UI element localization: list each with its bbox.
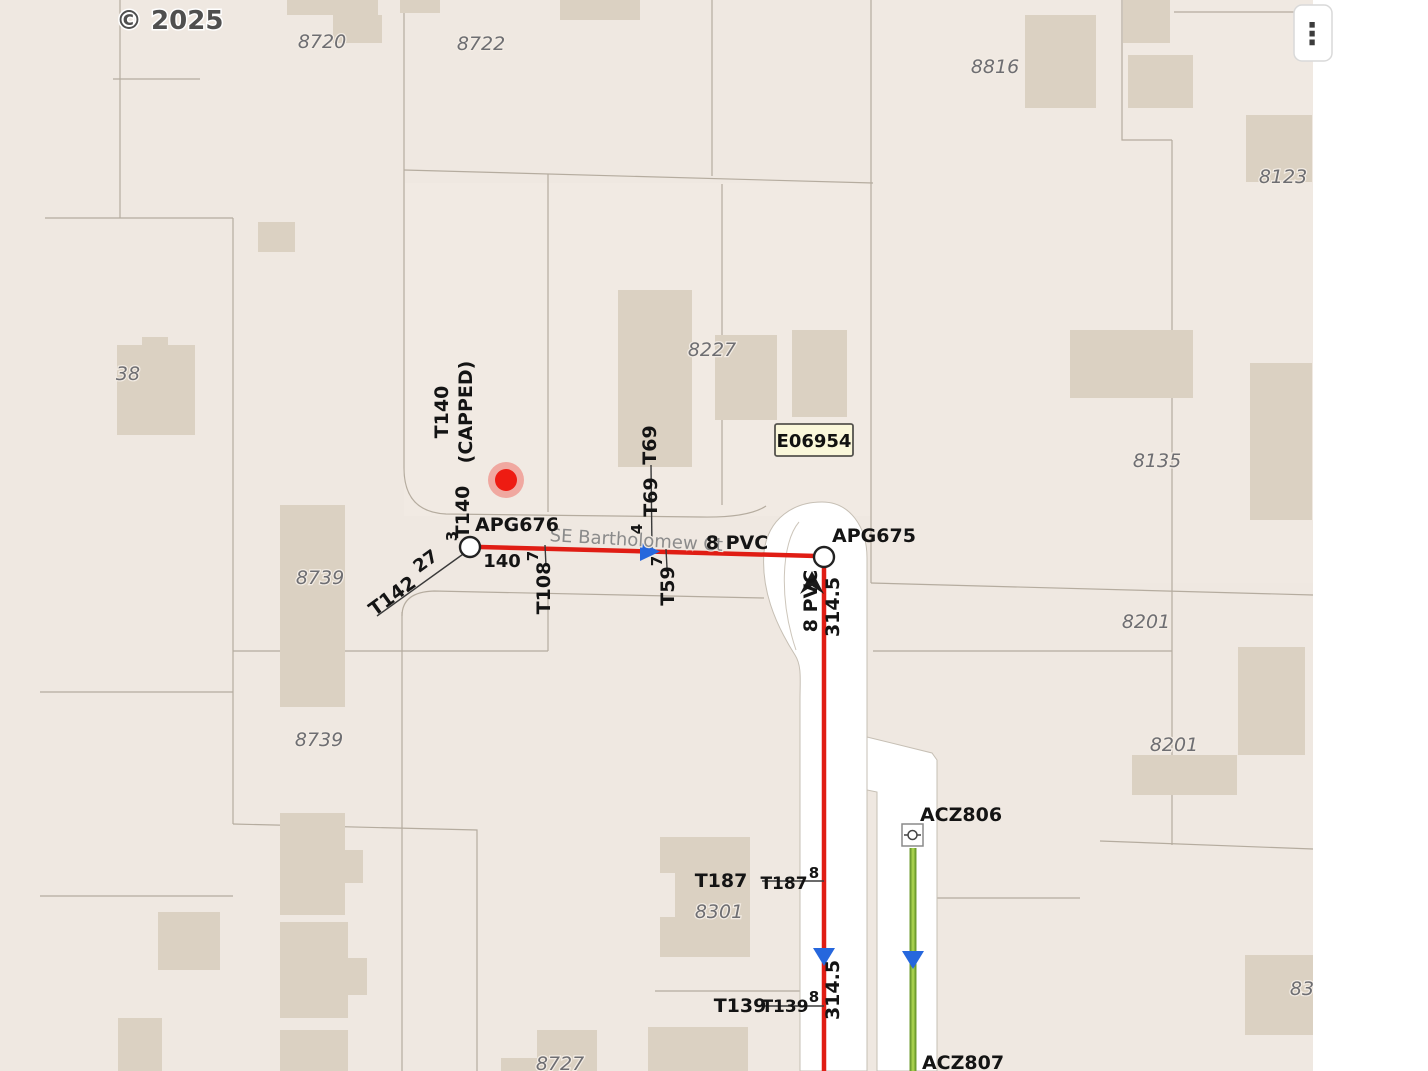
building <box>501 1058 537 1071</box>
tap-label-t108: T108 <box>533 562 555 615</box>
tap-label-t187: T187 <box>695 870 748 892</box>
dim-label-8: 8 <box>809 988 819 1006</box>
node-label-acz807: ACZ807 <box>922 1052 1004 1071</box>
building <box>158 912 220 970</box>
map-margin <box>1313 0 1428 1071</box>
building <box>1132 755 1237 795</box>
tap-label-t187: T187 <box>760 874 807 894</box>
selection-dot <box>495 469 517 491</box>
tap-label-capped: (CAPPED) <box>455 361 477 464</box>
building <box>348 958 367 995</box>
building <box>648 1027 748 1071</box>
tap-label-t139: T139 <box>761 997 808 1017</box>
side-road <box>867 737 937 1071</box>
building <box>345 850 363 883</box>
building <box>1070 330 1193 398</box>
copyright-label: © 2025 <box>116 6 223 36</box>
gis-map-viewport[interactable]: 8720 8722 8816 8123 38 8227 8135 8739 87… <box>0 0 1428 1071</box>
dim-label-3: 3 <box>443 531 461 541</box>
length-label-314: 314.5 <box>822 577 844 637</box>
meter-dial <box>908 831 917 840</box>
building <box>117 345 195 435</box>
building <box>1250 363 1312 520</box>
tap-label-t140-capped: T140 <box>431 386 453 439</box>
building <box>1123 0 1170 43</box>
parcel-label: 8720 <box>298 31 346 53</box>
building <box>287 0 378 15</box>
parcel-label: 8739 <box>295 729 343 751</box>
dim-label-4: 4 <box>628 524 646 534</box>
dim-label-8: 8 <box>809 864 819 882</box>
meter-icon[interactable] <box>902 824 923 846</box>
parcel-label: 8727 <box>536 1053 584 1071</box>
node-apg675[interactable] <box>814 547 834 567</box>
building <box>280 1030 348 1071</box>
building <box>400 0 440 13</box>
pipe-label-8pvc: 8 PVC <box>706 532 768 554</box>
callout-label: E06954 <box>777 431 852 452</box>
building <box>792 330 847 417</box>
kebab-menu-icon: ⋮ <box>1297 17 1327 52</box>
parcel-label: 8201 <box>1150 734 1198 756</box>
parcel-label: 8816 <box>971 56 1019 78</box>
length-label-314: 314.5 <box>822 960 844 1020</box>
building <box>1128 55 1193 108</box>
node-apg676[interactable] <box>460 537 480 557</box>
building <box>280 505 345 707</box>
map-canvas[interactable]: 8720 8722 8816 8123 38 8227 8135 8739 87… <box>0 0 1428 1071</box>
tap-label-t69: T69 <box>640 477 662 516</box>
tap-label-t69: T69 <box>639 425 661 464</box>
tap-label-t139: T139 <box>714 995 767 1017</box>
tap-label-t140: T140 <box>452 486 474 539</box>
parcel-label: 8123 <box>1259 166 1307 188</box>
building <box>258 222 295 252</box>
parcel-label: 8201 <box>1122 611 1170 633</box>
node-label-apg675: APG675 <box>832 525 916 547</box>
dim-label-7: 7 <box>524 551 542 561</box>
building <box>660 917 750 957</box>
building <box>118 1018 162 1071</box>
building <box>660 837 750 873</box>
parcel-label: 8301 <box>695 901 743 923</box>
building <box>1025 15 1096 108</box>
node-label-acz806: ACZ806 <box>920 804 1002 826</box>
menu-button[interactable]: ⋮ <box>1294 5 1332 61</box>
selected-feature-marker[interactable] <box>488 462 524 498</box>
parcel-label: 83 <box>1290 978 1314 1000</box>
callout-box[interactable]: E06954 <box>775 424 853 456</box>
parcel-label: 8227 <box>688 339 736 361</box>
dim-label-140: 140 <box>483 551 521 572</box>
building <box>280 813 345 915</box>
building <box>1238 647 1305 755</box>
tap-label-t59: T59 <box>657 566 679 605</box>
pipe-label-8pvc: 8 PVC <box>800 570 822 632</box>
dim-label-7: 7 <box>648 556 666 566</box>
building <box>280 922 348 1018</box>
building <box>560 0 640 20</box>
parcel-label: 38 <box>116 363 140 385</box>
parcel-label: 8739 <box>296 567 344 589</box>
parcel-label: 8135 <box>1133 450 1181 472</box>
node-label-apg676: APG676 <box>475 514 559 536</box>
parcel-label: 8722 <box>457 33 505 55</box>
